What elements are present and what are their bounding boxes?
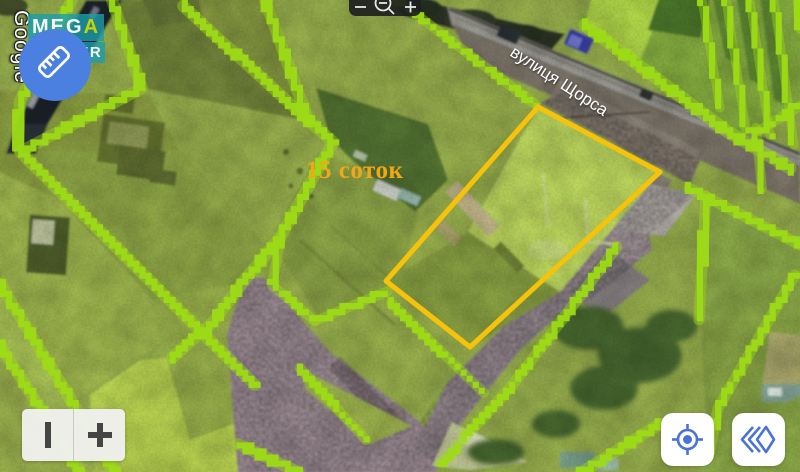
svg-text:15 соток: 15 соток <box>306 157 403 184</box>
